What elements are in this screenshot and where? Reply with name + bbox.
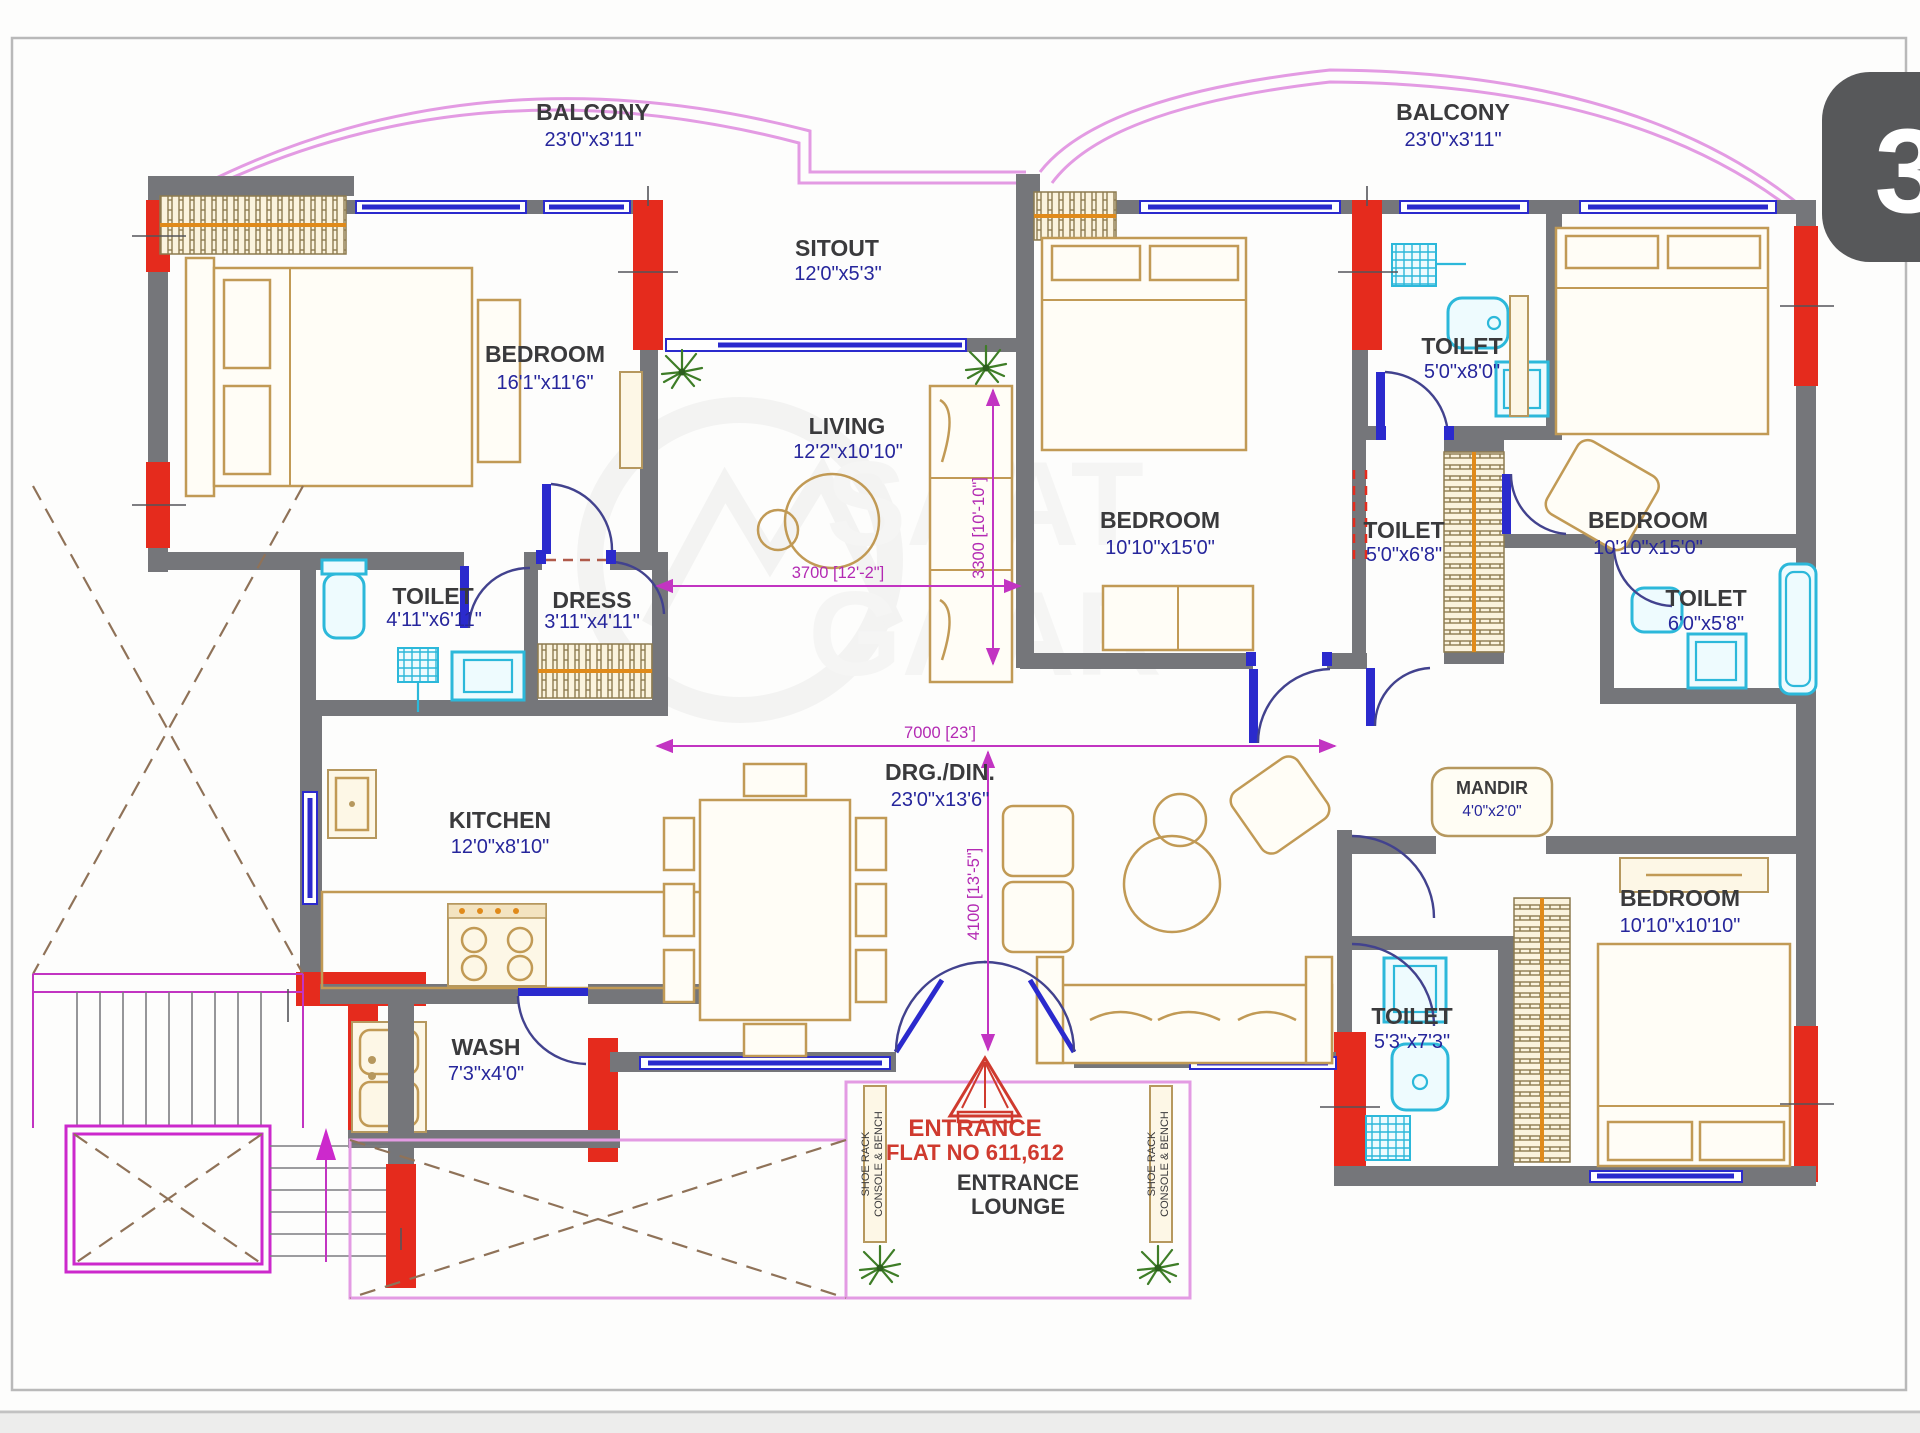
bedroom-right-dims: 10'10"x15'0" (1593, 537, 1703, 559)
wc-icon (1392, 1044, 1448, 1110)
shower-grate-icon (398, 648, 438, 682)
balcony-right-label: BALCONY (1396, 99, 1510, 125)
living-label: LIVING (809, 413, 886, 439)
cistern-icon (322, 560, 366, 574)
shoe-rack-right-line2: CONSOLE & BENCH (1159, 1111, 1171, 1217)
bedroom-left-dims: 16'1"x11'6" (496, 372, 593, 394)
wash-label: WASH (452, 1034, 521, 1060)
mandir-box: MANDIR 4'0"x2'0" (1432, 768, 1552, 836)
floor-plan-sheet: 3 SAAT GAAR R BALCONY 23'0"x3'11" BALCON… (0, 0, 1920, 1433)
mandir-dims: 4'0"x2'0" (1462, 803, 1521, 820)
shoe-rack-left-line1: SHOE RACK (860, 1131, 872, 1196)
kitchen-dims: 12'0"x8'10" (451, 836, 550, 858)
page-number-badge: 3 (1822, 72, 1920, 262)
sitout-label: SITOUT (795, 235, 879, 261)
drg-din-label: DRG./DIN. (885, 759, 995, 785)
armchair-2 (1003, 882, 1073, 952)
bedroom-mid-label: BEDROOM (1100, 507, 1220, 533)
toilet-mid-dims: 5'0"x6'8" (1366, 544, 1442, 566)
round-table-drg (1124, 836, 1220, 932)
toilet-left-label: TOILET (392, 583, 473, 609)
window-bedroom-mid-top (1140, 201, 1340, 213)
window-bedroom-left-top (356, 201, 526, 213)
entrance-lounge-line1: ENTRANCE (957, 1170, 1079, 1195)
dimension-3700-text: 3700 [12'-2"] (792, 564, 885, 582)
window-kitchen (303, 792, 317, 904)
column-bedroom-sitout (633, 200, 663, 350)
dimension-4100-text: 4100 [13'-5"] (965, 848, 983, 941)
dimension-7000: 7000 [23'] (657, 724, 1335, 746)
window-entrance-left (640, 1057, 890, 1069)
toilet-left-dims: 4'11"x6'11" (386, 609, 482, 631)
bedroom-mid-dims: 10'10"x15'0" (1105, 537, 1215, 559)
ledge-bedroom-right (1510, 296, 1528, 416)
drg-din-dims: 23'0"x13'6" (891, 789, 990, 811)
toilet-right-dims: 6'0"x5'8" (1668, 613, 1744, 635)
dimension-7000-text: 7000 [23'] (904, 724, 976, 742)
dining-table (700, 800, 850, 1020)
window-bedroom-right-top (1580, 201, 1776, 213)
dimension-3300-text: 3300 [10'-10"] (970, 477, 988, 579)
lift-shaft (66, 1126, 270, 1272)
armchair-1 (1003, 806, 1073, 876)
bed-left (186, 258, 520, 496)
stairs-upper (33, 974, 303, 1128)
bedroom-bottom-dims: 10'10"x10'10" (1620, 915, 1741, 937)
plant-sitout-left (662, 350, 702, 388)
toilet-mid-label: TOILET (1363, 517, 1444, 543)
mandir-label: MANDIR (1456, 778, 1528, 798)
column-toilet-top (1352, 200, 1382, 350)
entrance-flat-no: FLAT NO 611,612 (886, 1140, 1064, 1165)
shower-grate-icon (1392, 244, 1436, 286)
wc-icon (324, 574, 364, 638)
window-toilet-top (1400, 201, 1528, 213)
stairs-lower (270, 1128, 392, 1262)
bedroom-bottom-label: BEDROOM (1620, 885, 1740, 911)
column-stair (386, 1164, 416, 1288)
window-sitout (666, 339, 966, 351)
window-bedroom-bottom (1590, 1171, 1742, 1182)
toilet-bottom-fixtures (1366, 958, 1448, 1160)
ledge-bedroom-left (620, 372, 642, 468)
toilet-top-label: TOILET (1421, 333, 1502, 359)
living-dims: 12'2"x10'10" (793, 441, 903, 463)
stairs-up-arrow (316, 1128, 336, 1160)
sofa-drg (1037, 985, 1332, 1063)
wash-dims: 7'3"x4'0" (448, 1063, 524, 1085)
shower-grate-icon (1366, 1116, 1410, 1160)
balcony-right-dims: 23'0"x3'11" (1404, 129, 1501, 151)
shoe-rack-left-line2: CONSOLE & BENCH (873, 1111, 885, 1217)
kitchen-label: KITCHEN (449, 807, 551, 833)
plant-lounge-right (1138, 1246, 1178, 1284)
plant-lounge-left (860, 1246, 900, 1284)
window-bedroom-left-top2 (544, 201, 630, 213)
sitout-dims: 12'0"x5'3" (794, 263, 881, 285)
stair-wall (388, 1004, 414, 1166)
dining-set (664, 764, 886, 1056)
toilet-right-label: TOILET (1665, 585, 1746, 611)
entrance-title: ENTRANCE (908, 1115, 1041, 1142)
toilet-top-dims: 5'0"x8'0" (1424, 361, 1500, 383)
toilet-bottom-dims: 5'3"x7'3" (1374, 1031, 1450, 1053)
bedroom-left-label: BEDROOM (485, 341, 605, 367)
balcony-left-dims: 23'0"x3'11" (544, 129, 641, 151)
toilet-bottom-label: TOILET (1371, 1003, 1452, 1029)
kitchen-fittings (322, 770, 704, 988)
dress-dims: 3'11"x4'11" (544, 611, 640, 633)
bedroom-right-label: BEDROOM (1588, 507, 1708, 533)
page-number: 3 (1875, 104, 1920, 238)
dress-label: DRESS (552, 587, 631, 613)
balcony-left-label: BALCONY (536, 99, 650, 125)
entrance-symbol (950, 1058, 1020, 1122)
shoe-rack-right-line1: SHOE RACK (1146, 1131, 1158, 1196)
floor-plan-drawing: 3 SAAT GAAR R BALCONY 23'0"x3'11" BALCON… (0, 0, 1920, 1433)
stove-icon (448, 904, 546, 986)
armchair-3 (1226, 752, 1334, 859)
entrance-lounge-line2: LOUNGE (971, 1194, 1065, 1219)
